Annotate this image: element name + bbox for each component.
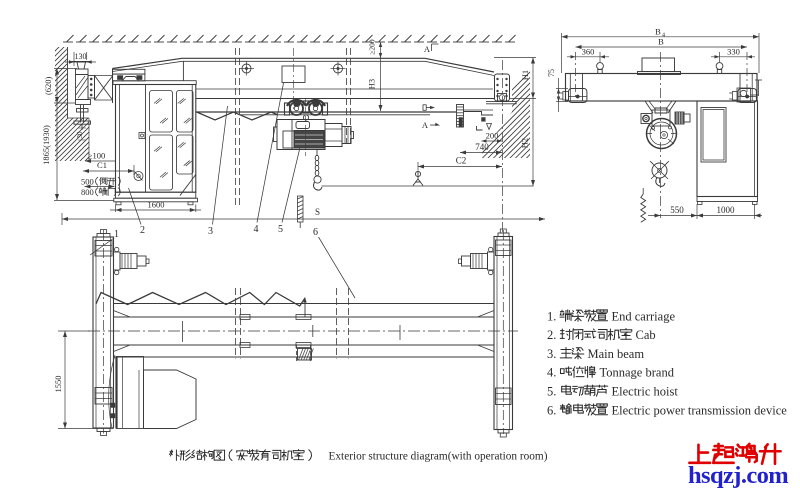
- svg-text:740: 740: [475, 142, 489, 152]
- svg-text:A: A: [424, 44, 431, 54]
- svg-text:B: B: [655, 27, 661, 37]
- svg-text:1550: 1550: [53, 376, 63, 393]
- svg-text:500: 500: [81, 177, 94, 187]
- svg-text:C2: C2: [456, 156, 467, 166]
- svg-text:75: 75: [547, 69, 556, 77]
- svg-text:330: 330: [727, 47, 740, 57]
- svg-text:4: 4: [254, 224, 259, 235]
- svg-text:C1: C1: [97, 160, 107, 170]
- svg-text:H3: H3: [367, 79, 377, 89]
- svg-text:≥100: ≥100: [88, 151, 105, 161]
- svg-text:H2: H2: [520, 138, 530, 148]
- svg-text:hsqzj.com: hsqzj.com: [688, 462, 788, 489]
- svg-text:Cab: Cab: [636, 328, 656, 342]
- svg-text:3: 3: [208, 226, 213, 237]
- svg-text:1: 1: [114, 229, 119, 240]
- svg-text:1600: 1600: [148, 200, 165, 210]
- svg-text:550: 550: [670, 205, 684, 215]
- svg-text:B: B: [658, 37, 664, 47]
- svg-text:S: S: [315, 207, 320, 217]
- svg-text:4.: 4.: [547, 366, 556, 380]
- svg-text:5.: 5.: [547, 385, 556, 399]
- svg-text:Main beam: Main beam: [588, 347, 645, 361]
- svg-text:2.: 2.: [547, 328, 556, 342]
- svg-text:Electric hoist: Electric hoist: [612, 385, 679, 399]
- svg-text:End carriage: End carriage: [612, 309, 676, 323]
- svg-text:(620): (620): [43, 76, 53, 95]
- svg-text:1000: 1000: [717, 205, 736, 215]
- svg-text:≥200: ≥200: [368, 39, 377, 55]
- svg-text:200: 200: [486, 131, 499, 141]
- svg-text:6.: 6.: [547, 403, 556, 417]
- svg-text:360: 360: [582, 47, 595, 57]
- svg-text:Exterior structure diagram(wit: Exterior structure diagram(with operatio…: [329, 451, 548, 463]
- svg-text:2: 2: [140, 225, 145, 236]
- svg-text:Tonnage brand: Tonnage brand: [600, 366, 675, 380]
- svg-text:3.: 3.: [547, 347, 556, 361]
- svg-text:5: 5: [278, 224, 283, 235]
- svg-text:130: 130: [75, 52, 87, 61]
- svg-text:800: 800: [81, 187, 94, 197]
- svg-text:1.: 1.: [547, 309, 556, 323]
- svg-text:Electric power transmission de: Electric power transmission device: [612, 403, 788, 417]
- svg-text:30: 30: [76, 131, 84, 139]
- svg-text:6: 6: [313, 227, 318, 238]
- svg-text:1865(1930): 1865(1930): [41, 125, 51, 165]
- svg-text:H1: H1: [520, 70, 530, 80]
- svg-text:A: A: [422, 120, 429, 130]
